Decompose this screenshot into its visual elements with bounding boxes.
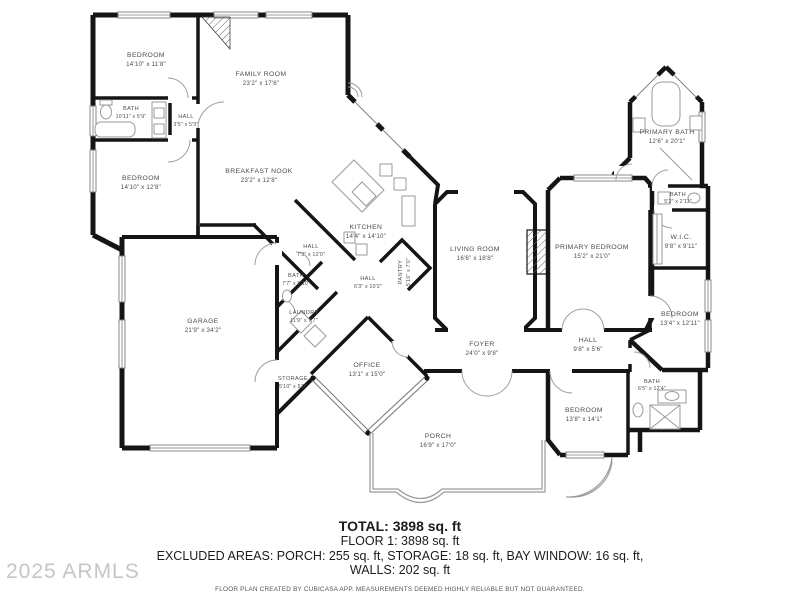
svg-text:W.I.C.: W.I.C.	[671, 234, 692, 241]
svg-text:21'9" x 34'2": 21'9" x 34'2"	[185, 327, 222, 334]
svg-text:BATH: BATH	[288, 273, 304, 279]
floor-area: FLOOR 1: 3898 sq. ft	[0, 534, 800, 549]
svg-text:HALL: HALL	[579, 337, 598, 344]
room-label-bedroom-1: BEDROOM 14'10" x 11'8"	[126, 52, 166, 68]
toilet-tank	[100, 100, 112, 105]
svg-text:16'9" x 17'0": 16'9" x 17'0"	[420, 442, 457, 449]
counter-sink	[356, 244, 367, 255]
svg-text:STORAGE: STORAGE	[278, 376, 308, 382]
room-label-bedroom-4: BEDROOM 13'8" x 14'1"	[565, 407, 603, 423]
svg-text:KITCHEN: KITCHEN	[350, 224, 383, 231]
svg-text:7'3" x 12'0": 7'3" x 12'0"	[297, 252, 325, 258]
room-label-hall-2: HALL 7'3" x 12'0"	[297, 244, 325, 258]
svg-text:BEDROOM: BEDROOM	[122, 175, 160, 182]
sink	[665, 392, 679, 401]
svg-text:LIVING ROOM: LIVING ROOM	[450, 246, 500, 253]
svg-text:BATH: BATH	[644, 379, 660, 385]
svg-text:PRIMARY BATH: PRIMARY BATH	[639, 129, 694, 136]
room-label-storage: STORAGE 5'10" x 5'9"	[278, 376, 308, 390]
toilet	[283, 290, 292, 302]
floor-plan-svg: BEDROOM 14'10" x 11'8" FAMILY ROOM 23'2"…	[0, 0, 800, 600]
room-label-bedroom-2: BEDROOM 14'10" x 12'8"	[121, 175, 161, 191]
room-label-garage: GARAGE 21'9" x 34'2"	[185, 318, 222, 334]
sink	[154, 124, 164, 134]
svg-text:BEDROOM: BEDROOM	[565, 407, 603, 414]
svg-text:GARAGE: GARAGE	[187, 318, 219, 325]
sink	[154, 108, 164, 118]
svg-text:14'10" x 11'8": 14'10" x 11'8"	[126, 61, 166, 68]
room-label-bedroom-3: BEDROOM 13'4" x 12'11"	[660, 311, 700, 327]
stairs-hatch	[202, 17, 230, 49]
svg-text:BATH: BATH	[670, 192, 686, 198]
svg-text:23'2" x 17'6": 23'2" x 17'6"	[243, 80, 280, 87]
floor-plan-page: BEDROOM 14'10" x 11'8" FAMILY ROOM 23'2"…	[0, 0, 800, 600]
dryer	[304, 325, 326, 347]
svg-text:FOYER: FOYER	[469, 341, 494, 348]
room-label-breakfast-nook: BREAKFAST NOOK 23'2" x 12'8"	[225, 168, 292, 184]
disclaimer: FLOOR PLAN CREATED BY CUBICASA APP. MEAS…	[0, 586, 800, 593]
svg-text:12'6" x 20'1": 12'6" x 20'1"	[649, 138, 686, 145]
svg-text:5'10" x 5'9": 5'10" x 5'9"	[279, 384, 307, 390]
room-label-bath-4: BATH 6'5" x 12'4"	[638, 379, 666, 392]
svg-text:23'2" x 12'8": 23'2" x 12'8"	[241, 177, 278, 184]
svg-text:13'1" x 15'0": 13'1" x 15'0"	[349, 371, 386, 378]
svg-text:24'0" x 9'8": 24'0" x 9'8"	[466, 350, 499, 357]
svg-text:PRIMARY BEDROOM: PRIMARY BEDROOM	[555, 244, 629, 251]
fireplace	[527, 230, 547, 274]
svg-text:PANTRY: PANTRY	[398, 260, 404, 285]
svg-text:BATH: BATH	[123, 106, 139, 112]
walls	[93, 15, 708, 455]
bathtub	[95, 122, 135, 137]
svg-text:BEDROOM: BEDROOM	[127, 52, 165, 59]
room-label-office: OFFICE 13'1" x 15'0"	[349, 362, 386, 378]
room-label-hall-3: HALL 6'3" x 10'2"	[354, 276, 382, 290]
room-label-bath-1: BATH 10'11" x 5'9"	[116, 106, 147, 120]
room-label-primary-bedroom: PRIMARY BEDROOM 15'2" x 21'0"	[555, 244, 629, 260]
room-label-porch: PORCH 16'9" x 17'0"	[420, 433, 457, 449]
room-label-foyer: FOYER 24'0" x 9'8"	[466, 341, 499, 357]
svg-text:LAUNDRY: LAUNDRY	[289, 310, 318, 316]
primary-bathtub	[652, 82, 680, 126]
refrigerator	[402, 196, 415, 226]
room-label-family-room: FAMILY ROOM 23'2" x 17'6"	[236, 71, 287, 87]
room-label-primary-bath: PRIMARY BATH 12'6" x 20'1"	[639, 129, 694, 145]
svg-text:9'8" x 9'11": 9'8" x 9'11"	[665, 243, 697, 250]
svg-text:9'8" x 5'6": 9'8" x 5'6"	[573, 346, 602, 353]
svg-text:HALL: HALL	[178, 114, 194, 120]
svg-text:3'5" x 5'9": 3'5" x 5'9"	[174, 122, 199, 128]
svg-text:5'10" x 7'0": 5'10" x 7'0"	[406, 258, 412, 286]
total-area: TOTAL: 3898 sq. ft	[0, 518, 800, 534]
svg-text:5'2" x 2'11": 5'2" x 2'11"	[664, 199, 692, 205]
svg-text:OFFICE: OFFICE	[353, 362, 380, 369]
svg-text:14'10" x 12'8": 14'10" x 12'8"	[121, 184, 161, 191]
svg-text:6'3" x 10'2": 6'3" x 10'2"	[354, 284, 382, 290]
svg-text:11'9" x 7'7": 11'9" x 7'7"	[290, 318, 318, 324]
vanity	[690, 116, 702, 130]
porch-outline	[370, 433, 612, 503]
svg-text:BREAKFAST NOOK: BREAKFAST NOOK	[225, 168, 292, 175]
shower-partition	[660, 148, 692, 180]
svg-text:7'7" x 5'10": 7'7" x 5'10"	[282, 281, 310, 287]
svg-text:10'11" x 5'9": 10'11" x 5'9"	[116, 114, 147, 120]
svg-text:15'2" x 21'0": 15'2" x 21'0"	[574, 253, 611, 260]
room-label-hall-4: HALL 9'8" x 5'6"	[573, 337, 602, 353]
svg-text:FAMILY ROOM: FAMILY ROOM	[236, 71, 287, 78]
svg-text:HALL: HALL	[303, 244, 319, 250]
svg-text:HALL: HALL	[360, 276, 376, 282]
svg-text:13'8" x 14'1": 13'8" x 14'1"	[566, 416, 603, 423]
toilet	[633, 403, 643, 417]
armls-watermark: 2025 ARMLS	[6, 560, 140, 584]
counter	[394, 178, 406, 190]
svg-text:14'4" x 14'10": 14'4" x 14'10"	[346, 233, 386, 240]
room-label-living-room: LIVING ROOM 16'6" x 18'8"	[450, 246, 500, 262]
svg-text:BEDROOM: BEDROOM	[661, 311, 699, 318]
svg-text:16'6" x 18'8": 16'6" x 18'8"	[457, 255, 494, 262]
svg-text:13'4" x 12'11": 13'4" x 12'11"	[660, 320, 700, 327]
stove	[380, 164, 392, 176]
fixtures	[95, 82, 702, 429]
room-label-pantry: PANTRY 5'10" x 7'0"	[398, 258, 412, 286]
toilet	[101, 105, 112, 119]
svg-text:PORCH: PORCH	[425, 433, 452, 440]
svg-text:6'5" x 12'4": 6'5" x 12'4"	[638, 386, 666, 392]
room-label-wic: W.I.C. 9'8" x 9'11"	[665, 234, 697, 250]
